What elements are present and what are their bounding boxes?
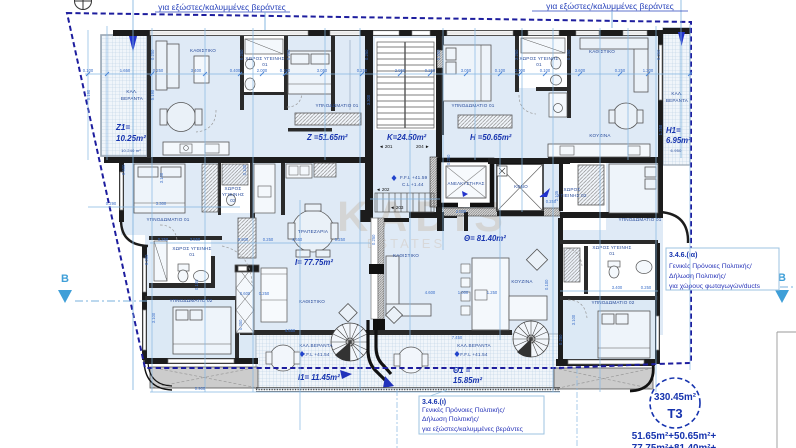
svg-text:0.250: 0.250 — [371, 234, 376, 245]
svg-text:ΒΕΡΑΝΤΑ: ΒΕΡΑΝΤΑ — [121, 96, 144, 101]
svg-text:0.250: 0.250 — [150, 49, 155, 60]
svg-text:01: 01 — [189, 252, 195, 257]
svg-text:3.050: 3.050 — [461, 68, 472, 73]
svg-text:0.100: 0.100 — [544, 279, 549, 290]
svg-text:0.250: 0.250 — [335, 237, 346, 242]
svg-text:0.900: 0.900 — [195, 386, 206, 391]
svg-text:ΧΩΡΟΣ ΥΓΕΙΝΗΣ: ΧΩΡΟΣ ΥΓΕΙΝΗΣ — [592, 245, 631, 250]
svg-text:0.600: 0.600 — [121, 164, 126, 175]
svg-text:3.4.6.(ια): 3.4.6.(ια) — [669, 252, 697, 259]
svg-text:ΧΩΡΟΣ ΥΓΕΙΝΗΣ: ΧΩΡΟΣ ΥΓΕΙΝΗΣ — [245, 56, 284, 61]
svg-text:0.100: 0.100 — [83, 68, 94, 73]
svg-text:0.250: 0.250 — [436, 49, 441, 60]
svg-text:Γενικές Πρόνοιες Πολιτικής/: Γενικές Πρόνοιες Πολιτικής/ — [669, 262, 752, 270]
svg-text:0.250: 0.250 — [641, 285, 652, 290]
svg-text:4.650: 4.650 — [285, 328, 296, 333]
svg-text:3.300: 3.300 — [156, 201, 167, 206]
svg-text:◄ 201: ◄ 201 — [379, 144, 393, 149]
svg-text:ΥΠΝΟΔΩΜΑΤΙΟ 01: ΥΠΝΟΔΩΜΑΤΙΟ 01 — [451, 103, 494, 108]
svg-text:0.100: 0.100 — [194, 279, 199, 290]
svg-text:Δήλωση Πολιτικής/: Δήλωση Πολιτικής/ — [422, 416, 479, 423]
svg-text:ΧΩΡΟΣ: ΧΩΡΟΣ — [564, 187, 581, 192]
svg-text:◄ 203: ◄ 203 — [390, 205, 404, 210]
svg-text:10.240 m²: 10.240 m² — [121, 148, 141, 153]
svg-text:0.250: 0.250 — [566, 49, 571, 60]
svg-text:0.290: 0.290 — [106, 201, 117, 206]
svg-text:C.L +1.44: C.L +1.44 — [402, 182, 424, 187]
svg-text:3.550: 3.550 — [190, 237, 201, 242]
svg-text:ΚΑΛ.: ΚΑΛ. — [126, 89, 137, 94]
svg-text:Z =51.65m²: Z =51.65m² — [306, 133, 348, 142]
svg-text:0.100: 0.100 — [242, 164, 247, 175]
svg-text:για εξώστες/καλυμμένες βεράντε: για εξώστες/καλυμμένες βεράντες — [546, 1, 674, 11]
svg-text:02: 02 — [230, 198, 236, 203]
svg-text:3.300: 3.300 — [366, 94, 371, 105]
svg-text:4.600: 4.600 — [425, 290, 436, 295]
svg-text:15.85m²: 15.85m² — [453, 376, 482, 385]
svg-text:ΑΝΕΛΚΥΣΤΗΡΑΣ: ΑΝΕΛΚΥΣΤΗΡΑΣ — [447, 181, 484, 186]
svg-text:0.250: 0.250 — [656, 49, 661, 60]
svg-text:10.25m²: 10.25m² — [116, 134, 146, 143]
svg-text:T3: T3 — [667, 406, 682, 421]
svg-text:1.250: 1.250 — [658, 124, 663, 135]
svg-text:0.250: 0.250 — [558, 334, 563, 345]
svg-text:0.100: 0.100 — [280, 68, 291, 73]
svg-text:3.4.6.(ι): 3.4.6.(ι) — [422, 399, 446, 406]
svg-text:3.600: 3.600 — [575, 68, 586, 73]
svg-text:για χώρους φωταγωγών/ducts: για χώρους φωταγωγών/ducts — [669, 282, 761, 290]
svg-text:3.400: 3.400 — [191, 68, 202, 73]
svg-text:ΚΑΘΙΣΤΙΚΟ: ΚΑΘΙΣΤΙΚΟ — [393, 253, 419, 258]
svg-text:ΚΟΥΖΙΝΑ: ΚΟΥΖΙΝΑ — [511, 279, 533, 284]
svg-text:ΚΕΝΟ: ΚΕΝΟ — [514, 184, 528, 189]
svg-text:01: 01 — [609, 251, 615, 256]
svg-text:ΥΠΝΟΔΩΜΑΤΙΟ 01: ΥΠΝΟΔΩΜΑΤΙΟ 01 — [618, 217, 661, 222]
svg-text:ΤΡΑΠΕΖΑΡΙΑ: ΤΡΑΠΕΖΑΡΙΑ — [298, 229, 329, 234]
svg-text:F.F.L +41.54: F.F.L +41.54 — [302, 352, 330, 357]
svg-text:0.250: 0.250 — [158, 237, 169, 242]
svg-text:51.65m²+50.65m²+: 51.65m²+50.65m²+ — [632, 431, 717, 442]
svg-text:01: 01 — [262, 62, 268, 67]
svg-text:0.250: 0.250 — [286, 49, 291, 60]
svg-text:2.000: 2.000 — [456, 209, 467, 214]
svg-text:01: 01 — [536, 62, 542, 67]
svg-text:F.F.L +41.59: F.F.L +41.59 — [400, 175, 428, 180]
svg-text:0.600: 0.600 — [240, 291, 251, 296]
svg-text:για εξώστες/καλυμμένες βεράντε: για εξώστες/καλυμμένες βεράντες — [422, 425, 524, 433]
svg-text:ΚΑΘΙΣΤΙΚΟ: ΚΑΘΙΣΤΙΚΟ — [190, 48, 216, 53]
svg-text:για εξώστες/καλυμμένες βεράντε: για εξώστες/καλυμμένες βεράντες — [158, 2, 286, 12]
svg-text:0.250: 0.250 — [425, 68, 436, 73]
svg-text:0.250: 0.250 — [615, 68, 626, 73]
svg-text:ΧΩΡΟΣ: ΧΩΡΟΣ — [225, 186, 242, 191]
svg-text:1.000: 1.000 — [458, 290, 469, 295]
svg-text:0.400: 0.400 — [230, 68, 241, 73]
svg-text:3.100: 3.100 — [159, 172, 164, 183]
svg-text:3.100: 3.100 — [571, 314, 576, 325]
svg-text:2.000: 2.000 — [257, 68, 268, 73]
svg-text:K=24.50m²: K=24.50m² — [387, 133, 427, 142]
svg-text:F.F.L +41.54: F.F.L +41.54 — [460, 352, 488, 357]
svg-text:1.300: 1.300 — [643, 68, 654, 73]
svg-text:0.250: 0.250 — [153, 68, 164, 73]
svg-text:ΥΠΝΟΔΩΜΑΤΙΟ 01: ΥΠΝΟΔΩΜΑΤΙΟ 01 — [315, 103, 358, 108]
svg-text:3.100: 3.100 — [151, 312, 156, 323]
svg-text:5.190: 5.190 — [150, 89, 155, 100]
svg-text:2.000: 2.000 — [515, 68, 526, 73]
svg-text:ΒΕΡΑΝΤΑ: ΒΕΡΑΝΤΑ — [666, 98, 689, 103]
svg-text:ΚΑΘΙΣΤΙΚΟ: ΚΑΘΙΣΤΙΚΟ — [589, 49, 615, 54]
svg-text:0.250: 0.250 — [446, 154, 451, 165]
svg-text:ΥΠΝΟΔΩΜΑΤΙΟ 02: ΥΠΝΟΔΩΜΑΤΙΟ 02 — [591, 300, 634, 305]
svg-text:ΚΑΛ.: ΚΑΛ. — [671, 91, 682, 96]
svg-text:H1=: H1= — [666, 126, 681, 135]
svg-text:204 ►: 204 ► — [416, 144, 430, 149]
svg-text:330.45m²: 330.45m² — [654, 392, 697, 403]
svg-text:0.250: 0.250 — [263, 237, 274, 242]
svg-text:7.450: 7.450 — [452, 335, 463, 340]
svg-text:0.250: 0.250 — [357, 68, 368, 73]
svg-text:5.190: 5.190 — [86, 89, 91, 100]
svg-text:0.250: 0.250 — [239, 49, 244, 60]
svg-text:3.050: 3.050 — [317, 68, 328, 73]
svg-text:0.350: 0.350 — [238, 319, 243, 330]
svg-text:ΚΑΘΙΣΤΙΚΟ: ΚΑΘΙΣΤΙΚΟ — [299, 299, 325, 304]
svg-text:ΥΓΙΕΙΝΗΣ: ΥΓΙΕΙΝΗΣ — [222, 192, 244, 197]
svg-text:ΧΩΡΟΣ ΥΓΕΙΝΗΣ: ΧΩΡΟΣ ΥΓΕΙΝΗΣ — [172, 246, 211, 251]
svg-text:0.250: 0.250 — [259, 291, 270, 296]
svg-text:ΥΠΝΟΔΩΜΑΤΙΟ 02: ΥΠΝΟΔΩΜΑΤΙΟ 02 — [169, 298, 212, 303]
svg-text:3.400: 3.400 — [612, 285, 623, 290]
svg-text:I= 77.75m²: I= 77.75m² — [295, 258, 333, 267]
svg-text:6.950: 6.950 — [670, 148, 682, 153]
svg-text:6.95m²: 6.95m² — [666, 136, 691, 145]
svg-text:Z1=: Z1= — [115, 123, 130, 132]
svg-text:0.250: 0.250 — [144, 254, 149, 265]
svg-text:4.650: 4.650 — [292, 237, 303, 242]
svg-text:ΚΑΛ.ΒΕΡΑΝΤΑ: ΚΑΛ.ΒΕΡΑΝΤΑ — [299, 343, 333, 348]
svg-text:ΚΟΥΖΙΝΑ: ΚΟΥΖΙΝΑ — [589, 133, 611, 138]
svg-text:Δήλωση Πολιτικής/: Δήλωση Πολιτικής/ — [669, 273, 726, 280]
svg-text:I1= 11.45m²: I1= 11.45m² — [298, 373, 340, 382]
svg-text:ΥΠΝΟΔΩΜΑΤΙΟ 01: ΥΠΝΟΔΩΜΑΤΙΟ 01 — [146, 217, 189, 222]
svg-text:Γενικές Πρόνοιες Πολιτικής/: Γενικές Πρόνοιες Πολιτικής/ — [422, 406, 505, 414]
svg-text:0.600: 0.600 — [238, 237, 249, 242]
svg-text:B: B — [61, 273, 69, 285]
svg-text:77.75m²+81.40m²+: 77.75m²+81.40m²+ — [632, 443, 717, 448]
svg-text:ΥΓΙΕΙΝΗΣ 02: ΥΓΙΕΙΝΗΣ 02 — [557, 193, 587, 198]
svg-text:0.250: 0.250 — [364, 49, 369, 60]
svg-text:◄ 202: ◄ 202 — [376, 187, 390, 192]
svg-text:Θ1 =: Θ1 = — [453, 366, 471, 375]
svg-text:1.650: 1.650 — [120, 68, 131, 73]
svg-text:0.100: 0.100 — [540, 68, 551, 73]
svg-text:1.250: 1.250 — [487, 290, 498, 295]
svg-text:2.950: 2.950 — [395, 68, 406, 73]
svg-text:H =50.65m²: H =50.65m² — [470, 133, 512, 142]
svg-text:ΚΑΛ.ΒΕΡΑΝΤΑ: ΚΑΛ.ΒΕΡΑΝΤΑ — [457, 343, 491, 348]
svg-text:2.250: 2.250 — [514, 49, 519, 60]
svg-text:0.100: 0.100 — [495, 68, 506, 73]
